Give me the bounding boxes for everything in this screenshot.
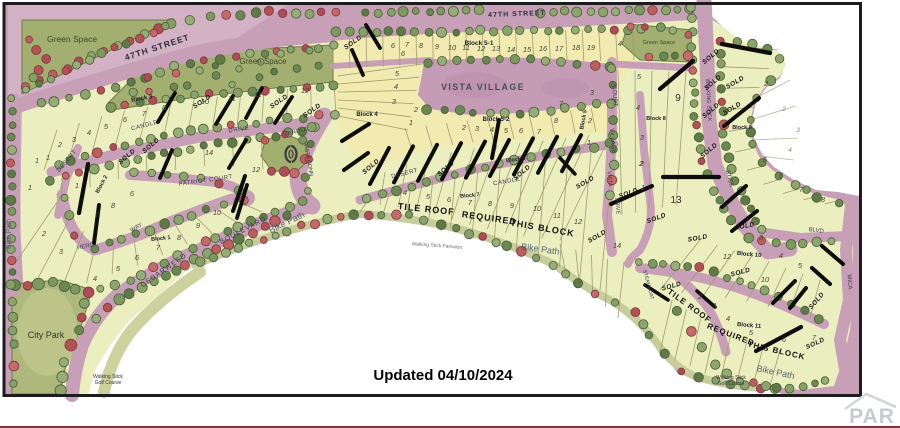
svg-text:12: 12 xyxy=(574,217,583,226)
svg-text:2: 2 xyxy=(639,159,645,168)
svg-text:11: 11 xyxy=(553,211,561,220)
svg-text:2: 2 xyxy=(763,79,769,88)
svg-text:13: 13 xyxy=(670,195,682,206)
svg-text:Block 9: Block 9 xyxy=(732,125,752,131)
svg-text:10: 10 xyxy=(533,204,542,213)
svg-text:1: 1 xyxy=(28,183,32,192)
svg-text:2: 2 xyxy=(461,123,467,132)
svg-text:12: 12 xyxy=(252,165,261,174)
svg-text:Block 4: Block 4 xyxy=(356,112,378,118)
svg-text:1: 1 xyxy=(46,153,50,162)
svg-text:1: 1 xyxy=(587,138,591,147)
svg-text:10: 10 xyxy=(201,97,210,106)
svg-text:4: 4 xyxy=(87,128,91,137)
svg-text:Block 8: Block 8 xyxy=(646,116,666,122)
svg-text:10: 10 xyxy=(213,208,222,217)
svg-text:14: 14 xyxy=(613,241,621,250)
svg-text:1: 1 xyxy=(641,183,645,192)
svg-text:14: 14 xyxy=(205,148,213,157)
svg-text:4: 4 xyxy=(726,314,730,323)
svg-text:1: 1 xyxy=(75,181,79,190)
svg-text:Golf Course: Golf Course xyxy=(95,380,122,386)
svg-text:City Park: City Park xyxy=(28,330,65,340)
svg-text:11: 11 xyxy=(462,43,470,52)
svg-text:4: 4 xyxy=(394,82,398,91)
svg-text:Green Space: Green Space xyxy=(239,57,287,66)
svg-text:13: 13 xyxy=(492,44,501,53)
svg-text:Green Space: Green Space xyxy=(643,40,675,46)
svg-text:4: 4 xyxy=(490,125,494,134)
svg-text:2: 2 xyxy=(57,140,63,149)
svg-text:Golf Course: Golf Course xyxy=(718,381,745,387)
svg-text:9: 9 xyxy=(675,93,681,104)
svg-text:1: 1 xyxy=(35,156,39,165)
svg-text:Updated 04/10/2024: Updated 04/10/2024 xyxy=(373,367,513,384)
svg-text:11: 11 xyxy=(228,94,236,103)
svg-text:12: 12 xyxy=(301,86,310,95)
svg-text:2: 2 xyxy=(587,116,593,125)
svg-text:10: 10 xyxy=(761,275,770,284)
svg-text:4: 4 xyxy=(93,274,97,283)
svg-text:4: 4 xyxy=(618,39,622,48)
svg-text:19: 19 xyxy=(587,43,596,52)
svg-text:4: 4 xyxy=(636,103,640,112)
svg-text:14: 14 xyxy=(507,45,515,54)
svg-text:2: 2 xyxy=(41,229,47,238)
svg-text:16: 16 xyxy=(539,44,548,53)
svg-text:4: 4 xyxy=(788,147,792,154)
svg-text:1: 1 xyxy=(409,118,413,127)
svg-text:15: 15 xyxy=(523,45,532,54)
svg-text:2: 2 xyxy=(697,292,703,301)
svg-text:3: 3 xyxy=(796,127,800,134)
svg-text:VISTA VILLAGE: VISTA VILLAGE xyxy=(441,82,525,92)
svg-text:17: 17 xyxy=(555,44,564,53)
svg-text:Bike Path: Bike Path xyxy=(6,219,13,249)
svg-text:4: 4 xyxy=(779,251,783,260)
svg-text:2: 2 xyxy=(781,106,786,113)
svg-text:18: 18 xyxy=(572,43,581,52)
svg-text:PAR: PAR xyxy=(849,405,895,428)
svg-text:Block 5-2: Block 5-2 xyxy=(483,117,510,123)
svg-text:2: 2 xyxy=(413,105,419,114)
svg-text:11: 11 xyxy=(254,90,262,99)
svg-text:12: 12 xyxy=(477,44,486,53)
svg-text:10: 10 xyxy=(448,43,457,52)
svg-text:12: 12 xyxy=(723,252,732,261)
svg-text:Green Space: Green Space xyxy=(47,34,97,44)
svg-text:4: 4 xyxy=(403,188,407,197)
